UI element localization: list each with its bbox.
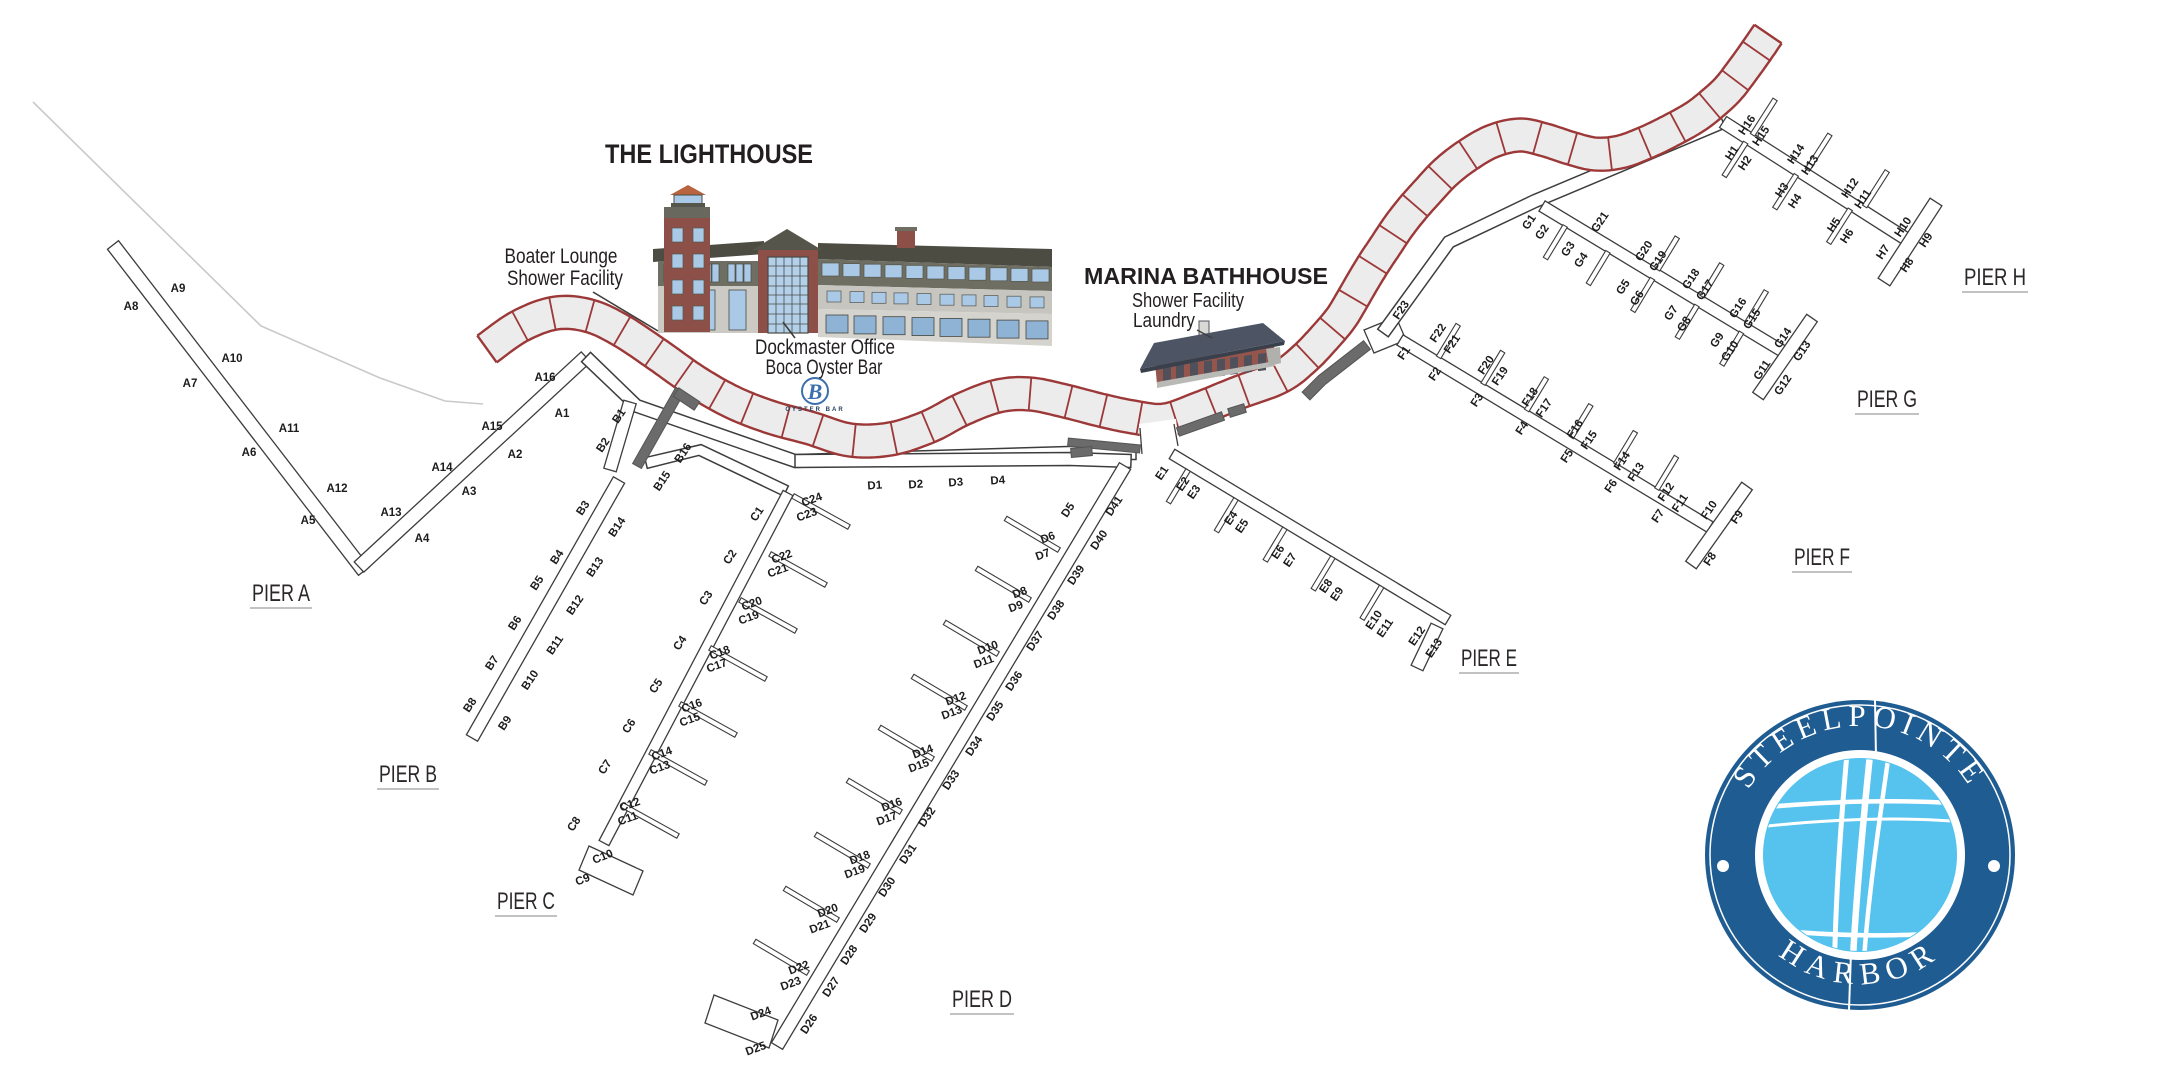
svg-text:B8: B8 xyxy=(461,695,480,714)
svg-text:G3: G3 xyxy=(1559,240,1578,259)
svg-text:G15: G15 xyxy=(1741,306,1763,331)
svg-text:A16: A16 xyxy=(534,372,555,384)
svg-text:PIER A: PIER A xyxy=(252,580,310,607)
svg-text:A9: A9 xyxy=(171,283,186,295)
svg-text:B9: B9 xyxy=(496,714,514,733)
svg-text:Shower Facility: Shower Facility xyxy=(1132,290,1244,312)
svg-text:A4: A4 xyxy=(415,533,430,545)
svg-text:D19: D19 xyxy=(843,863,867,881)
svg-text:D2: D2 xyxy=(908,479,924,492)
svg-text:THE LIGHTHOUSE: THE LIGHTHOUSE xyxy=(605,139,813,169)
svg-text:Boater Lounge: Boater Lounge xyxy=(505,245,618,268)
svg-text:F7: F7 xyxy=(1650,507,1667,525)
svg-text:C3: C3 xyxy=(697,589,715,608)
svg-text:D11: D11 xyxy=(972,653,996,671)
svg-text:H4: H4 xyxy=(1786,191,1805,210)
svg-text:F17: F17 xyxy=(1534,397,1555,420)
svg-text:PIER H: PIER H xyxy=(1964,264,2026,291)
svg-text:D9: D9 xyxy=(1007,599,1025,615)
svg-text:PIER E: PIER E xyxy=(1461,645,1517,672)
svg-text:E1: E1 xyxy=(1154,464,1172,483)
svg-text:C4: C4 xyxy=(671,633,690,652)
svg-text:B6: B6 xyxy=(506,614,524,633)
svg-text:A12: A12 xyxy=(326,483,347,495)
svg-text:C1: C1 xyxy=(748,504,767,523)
svg-text:G4: G4 xyxy=(1572,250,1591,270)
svg-text:A3: A3 xyxy=(462,486,477,498)
svg-text:D13: D13 xyxy=(940,704,964,722)
svg-text:H1: H1 xyxy=(1723,143,1742,162)
svg-text:D4: D4 xyxy=(990,474,1006,487)
svg-text:D17: D17 xyxy=(875,810,899,828)
svg-text:PIER F: PIER F xyxy=(1794,544,1850,571)
svg-text:B13: B13 xyxy=(585,555,607,579)
svg-text:A6: A6 xyxy=(242,447,257,459)
svg-text:D3: D3 xyxy=(948,477,964,490)
svg-text:B7: B7 xyxy=(483,654,501,673)
svg-text:B15: B15 xyxy=(652,469,674,494)
svg-text:MARINA BATHHOUSE: MARINA BATHHOUSE xyxy=(1084,263,1328,289)
svg-text:C2: C2 xyxy=(721,548,739,567)
svg-text:OYSTER BAR: OYSTER BAR xyxy=(785,407,844,413)
svg-text:F6: F6 xyxy=(1603,477,1620,495)
svg-text:A15: A15 xyxy=(481,421,503,433)
svg-text:B5: B5 xyxy=(528,573,547,592)
svg-text:PIER C: PIER C xyxy=(497,888,555,915)
svg-text:B14: B14 xyxy=(607,515,629,540)
svg-text:D7: D7 xyxy=(1034,547,1052,563)
svg-text:C23: C23 xyxy=(795,506,819,524)
svg-text:Laundry: Laundry xyxy=(1133,310,1195,332)
svg-text:A2: A2 xyxy=(508,449,523,461)
svg-text:H6: H6 xyxy=(1838,227,1856,246)
svg-text:C5: C5 xyxy=(647,676,666,695)
svg-text:PIER D: PIER D xyxy=(952,986,1012,1013)
svg-text:B10: B10 xyxy=(520,668,542,692)
svg-text:F15: F15 xyxy=(1579,428,1600,452)
svg-text:B: B xyxy=(807,379,823,404)
svg-text:C17: C17 xyxy=(705,657,729,675)
svg-text:A5: A5 xyxy=(301,515,316,527)
svg-text:PIER B: PIER B xyxy=(379,761,437,788)
svg-text:A8: A8 xyxy=(124,301,139,313)
svg-text:G2: G2 xyxy=(1533,223,1552,242)
svg-text:PIER G: PIER G xyxy=(1857,386,1917,413)
svg-text:C19: C19 xyxy=(737,609,761,627)
svg-text:A13: A13 xyxy=(380,507,401,519)
svg-text:C8: C8 xyxy=(565,814,584,833)
svg-text:A14: A14 xyxy=(431,462,453,474)
svg-text:G9: G9 xyxy=(1708,331,1727,350)
svg-text:B12: B12 xyxy=(565,593,587,617)
svg-text:D5: D5 xyxy=(1059,500,1078,519)
svg-text:G7: G7 xyxy=(1662,304,1681,323)
svg-text:B3: B3 xyxy=(574,499,592,518)
svg-text:A7: A7 xyxy=(183,378,198,390)
svg-text:B11: B11 xyxy=(545,633,567,657)
svg-text:F21: F21 xyxy=(1442,332,1463,356)
svg-text:Shower Facility: Shower Facility xyxy=(507,267,623,290)
svg-text:A10: A10 xyxy=(221,353,242,365)
svg-text:D21: D21 xyxy=(808,918,832,937)
svg-text:G1: G1 xyxy=(1520,212,1539,232)
svg-text:C7: C7 xyxy=(596,758,614,777)
svg-text:C6: C6 xyxy=(620,717,638,736)
svg-text:Boca Oyster Bar: Boca Oyster Bar xyxy=(766,356,883,379)
svg-text:D23: D23 xyxy=(779,975,803,993)
svg-text:A1: A1 xyxy=(555,408,570,420)
svg-text:G21: G21 xyxy=(1589,209,1611,234)
svg-text:G5: G5 xyxy=(1614,277,1633,297)
svg-text:D1: D1 xyxy=(867,479,883,492)
svg-text:A11: A11 xyxy=(279,423,300,435)
